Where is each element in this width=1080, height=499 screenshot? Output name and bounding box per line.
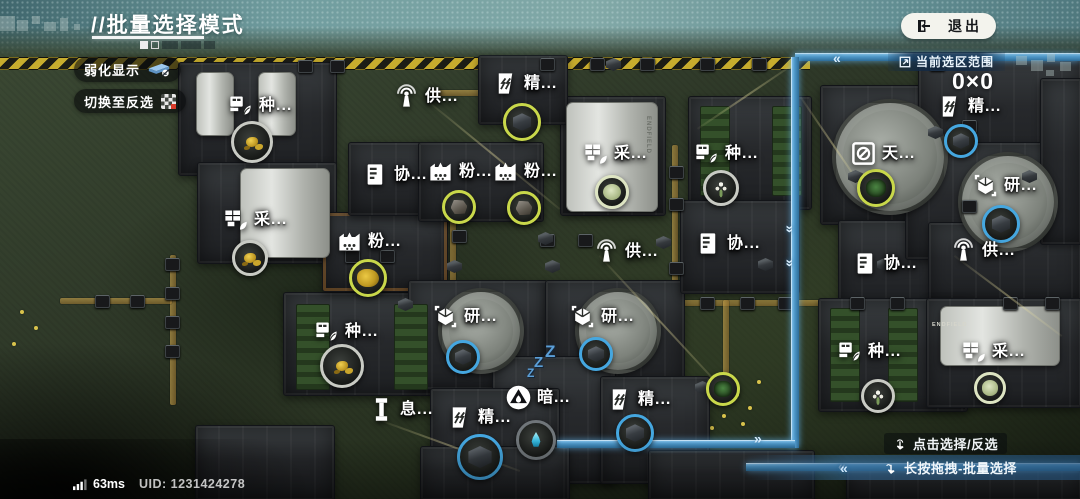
glitch-pixels: [1046, 70, 1054, 76]
item-circle: [861, 379, 895, 413]
conveyor-node: [890, 297, 905, 310]
conveyor-node: [590, 58, 605, 71]
plant-item: [866, 179, 886, 197]
building-label-chip[interactable]: 研...: [972, 172, 1037, 199]
item-circle: [595, 175, 629, 209]
building-label-chip[interactable]: 精...: [936, 93, 1001, 120]
mine-icon: [222, 206, 249, 233]
rest-icon: [368, 396, 395, 423]
conveyor-chevron: «: [840, 460, 848, 476]
item-circle: [349, 259, 387, 297]
refine-icon: [446, 404, 473, 431]
conveyor-node: [752, 58, 767, 71]
expand-icon: [899, 56, 911, 68]
item-circle: [974, 372, 1006, 404]
building-label-chip[interactable]: 息...: [368, 396, 433, 423]
title-underline: [92, 36, 204, 39]
building-label: 粉...: [368, 234, 401, 250]
conveyor-node: [740, 297, 755, 310]
conveyor-node: [165, 316, 180, 329]
building-label: 精...: [638, 392, 671, 408]
conveyor-node: [165, 287, 180, 300]
cube-item: [588, 346, 604, 361]
machine-brand-text: ENDFIELD: [932, 322, 968, 328]
building-label-chip[interactable]: 种...: [693, 140, 758, 167]
cube-item: [953, 133, 969, 148]
hint-click-select: 点击选择/反选: [884, 433, 1007, 454]
seed-icon: [836, 338, 863, 365]
grind-icon: [492, 158, 519, 185]
mine-icon: [960, 338, 987, 365]
building-label: 供...: [425, 89, 458, 105]
network-status: 63ms UID: 1231424278: [72, 477, 245, 491]
item-circle: [616, 414, 654, 452]
conveyor-node: [669, 262, 684, 275]
building-label: 暗...: [537, 390, 570, 406]
building-label-chip[interactable]: 粉...: [427, 158, 492, 185]
item-circle: [579, 337, 613, 371]
building-label: 采...: [992, 344, 1025, 360]
cube-item: [468, 446, 491, 468]
grass-flower: [757, 380, 761, 384]
item-circle: [442, 190, 476, 224]
protocol-icon: [852, 250, 879, 277]
weaken-display-button[interactable]: 弱化显示: [74, 57, 181, 82]
grass-flower: [34, 326, 38, 330]
building-label-chip[interactable]: 种...: [227, 92, 292, 119]
hint-click-text: 点击选择/反选: [913, 434, 998, 453]
building-label-chip[interactable]: 采...: [960, 338, 1025, 365]
cube-item: [455, 349, 471, 364]
uid-value: UID: 1231424278: [139, 477, 245, 491]
refine-icon: [492, 70, 519, 97]
building-label-chip[interactable]: 协...: [695, 230, 760, 257]
item-circle: [503, 103, 541, 141]
glitch-pixels: [0, 16, 15, 31]
building-label: 种...: [725, 146, 758, 162]
research-icon: [569, 303, 596, 330]
glitch-pixels: [74, 24, 80, 30]
building-label-chip[interactable]: 种...: [836, 338, 901, 365]
glitch-pixels: [32, 16, 40, 24]
refine-icon: [936, 93, 963, 120]
supply-icon: [950, 237, 977, 264]
building-label-chip[interactable]: 精...: [606, 386, 671, 413]
building-label: 采...: [254, 212, 287, 228]
conveyor-node: [165, 345, 180, 358]
building-label-chip[interactable]: 粉...: [492, 158, 557, 185]
glitch-pixels: [60, 18, 68, 31]
title-progress: [140, 41, 215, 49]
building-label-chip[interactable]: 研...: [432, 303, 497, 330]
building-label: 种...: [868, 344, 901, 360]
building-label: 协...: [884, 256, 917, 272]
building-label: 粉...: [524, 164, 557, 180]
glitch-pixels: [1047, 54, 1055, 62]
cube-item: [626, 424, 645, 442]
pale-item: [603, 184, 621, 200]
page-title: //批量选择模式: [91, 9, 245, 39]
cube-item: [513, 113, 532, 131]
progress-block-empty: [151, 41, 159, 49]
invert-selection-label: 切换至反选: [84, 92, 154, 111]
protocol-icon: [362, 161, 389, 188]
conveyor-node: [700, 297, 715, 310]
progress-slab: [204, 41, 215, 49]
invert-selection-button[interactable]: 切换至反选: [74, 89, 186, 113]
hint-drag-band: « 长按拖拽-批量选择: [746, 455, 1080, 480]
conveyor-node: [669, 198, 684, 211]
building-label-chip[interactable]: 种...: [313, 318, 378, 345]
cargo-cube: [545, 260, 560, 273]
glitch-pixels: [17, 20, 28, 31]
building-label-chip[interactable]: 粉...: [336, 228, 401, 255]
gold-flower-item: [244, 253, 256, 263]
conveyor-node: [700, 58, 715, 71]
white-flower-item: [706, 173, 736, 203]
item-circle: [231, 121, 273, 163]
building-label-chip[interactable]: 研...: [569, 303, 634, 330]
conveyor-node: [669, 166, 684, 179]
building-label: 粉...: [459, 164, 492, 180]
rock-item: [516, 201, 533, 216]
exit-button[interactable]: 退出: [901, 13, 996, 39]
supply-icon: [593, 238, 620, 265]
building-label-chip[interactable]: 供...: [593, 238, 658, 265]
signal-icon: [72, 478, 93, 491]
conveyor-node: [330, 60, 345, 73]
research-icon: [432, 303, 459, 330]
gold-flower-item: [336, 361, 348, 371]
dark-icon: [505, 384, 532, 411]
sleep-indicator: Z: [545, 343, 555, 360]
item-circle: [320, 344, 364, 388]
building-label-chip[interactable]: 天...: [850, 140, 915, 167]
progress-slab: [162, 41, 178, 49]
conveyor-node: [850, 297, 865, 310]
glitch-pixels: [1031, 60, 1043, 71]
building-label: 供...: [625, 244, 658, 260]
conveyor-chevron: «: [781, 259, 795, 267]
building-label: 种...: [259, 98, 292, 114]
grass-flower: [710, 426, 714, 430]
building-label: 供...: [982, 243, 1015, 259]
gold-flower-item: [246, 137, 258, 147]
item-circle: [706, 372, 740, 406]
pale-item: [982, 380, 999, 395]
seed-icon: [227, 92, 254, 119]
building-label: 精...: [524, 76, 557, 92]
building-label: 息...: [400, 402, 433, 418]
hint-drag-text: 长按拖拽-批量选择: [904, 458, 1017, 477]
grass-flower: [20, 310, 24, 314]
grass-flower: [722, 414, 726, 418]
eye-slash-icon: [147, 61, 171, 78]
research-icon: [972, 172, 999, 199]
supply-icon: [393, 83, 420, 110]
building-label-chip[interactable]: 协...: [852, 250, 917, 277]
seed-icon: [693, 140, 720, 167]
checkerboard-icon: [161, 94, 176, 109]
building-label-chip[interactable]: 精...: [492, 70, 557, 97]
mine-icon: [582, 140, 609, 167]
sleep-indicator: Z: [534, 355, 543, 370]
item-circle: [516, 420, 556, 460]
conveyor-node: [130, 295, 145, 308]
conveyor-node: [578, 234, 593, 247]
building-label: 研...: [1004, 178, 1037, 194]
conveyor-node: [165, 258, 180, 271]
building-label-chip[interactable]: 供...: [393, 83, 458, 110]
pipe-road: [170, 255, 176, 405]
conveyor-node: [298, 60, 313, 73]
pipe-road: [450, 215, 456, 283]
building-label: 协...: [727, 236, 760, 252]
plant-item: [714, 381, 731, 396]
game-screen: ENDFIELD ENDFIELD «««««种...采...粉...种...息…: [0, 0, 1080, 499]
cube-item: [992, 215, 1011, 233]
conveyor-belt: [791, 57, 799, 448]
item-circle: [857, 169, 895, 207]
planter-bed: [394, 304, 428, 390]
building-label-chip[interactable]: 采...: [222, 206, 287, 233]
exit-door-icon: [915, 17, 933, 35]
refine-icon: [606, 386, 633, 413]
glitch-pixels: [44, 22, 56, 31]
grass-flower: [748, 406, 752, 410]
building-label: 研...: [464, 309, 497, 325]
building-label: 种...: [345, 324, 378, 340]
item-circle: [507, 191, 541, 225]
item-circle: [944, 124, 978, 158]
white-flower-item: [864, 382, 892, 410]
grass-flower: [741, 422, 745, 426]
building-label: 协...: [394, 167, 427, 183]
conveyor-node: [1045, 297, 1060, 310]
sleep-indicator: Z: [527, 367, 534, 379]
seed-icon: [313, 318, 340, 345]
building-label-chip[interactable]: 采...: [582, 140, 647, 167]
glitch-pixels: [1016, 56, 1027, 65]
item-circle: [457, 434, 503, 480]
observe-icon: [850, 140, 877, 167]
tap-icon: [893, 437, 907, 451]
conveyor-chevron: «: [754, 434, 762, 448]
progress-block-filled: [140, 41, 148, 49]
building-label: 天...: [882, 146, 915, 162]
conveyor-node: [640, 58, 655, 71]
drag-icon: [884, 461, 898, 475]
item-circle: [703, 170, 739, 206]
building-label-chip[interactable]: 暗...: [505, 384, 570, 411]
building-label: 精...: [968, 99, 1001, 115]
conveyor-chevron: «: [781, 225, 795, 233]
glitch-pixels: [1060, 62, 1071, 71]
grind-icon: [427, 158, 454, 185]
conveyor-chevron: «: [833, 51, 841, 65]
building-label-chip[interactable]: 供...: [950, 237, 1015, 264]
grind-icon: [336, 228, 363, 255]
building-label-chip[interactable]: 协...: [362, 161, 427, 188]
ping-value: 63ms: [93, 477, 125, 491]
drop-item: [530, 432, 542, 448]
building-label-chip[interactable]: 精...: [446, 404, 511, 431]
weaken-display-label: 弱化显示: [84, 60, 140, 79]
selection-range-value: 0×0: [952, 68, 994, 95]
building-label: 研...: [601, 309, 634, 325]
gold-item: [357, 269, 379, 288]
conveyor-node: [95, 295, 110, 308]
building-label: 采...: [614, 146, 647, 162]
conveyor-node: [962, 200, 977, 213]
pipe-road: [60, 298, 172, 304]
grass-flower: [12, 342, 16, 346]
progress-slab: [181, 41, 201, 49]
item-circle: [446, 340, 480, 374]
item-circle: [232, 240, 268, 276]
exit-label: 退出: [948, 16, 982, 36]
rock-item: [451, 200, 468, 215]
conveyor-node: [452, 230, 467, 243]
protocol-icon: [695, 230, 722, 257]
building-label: 精...: [478, 410, 511, 426]
